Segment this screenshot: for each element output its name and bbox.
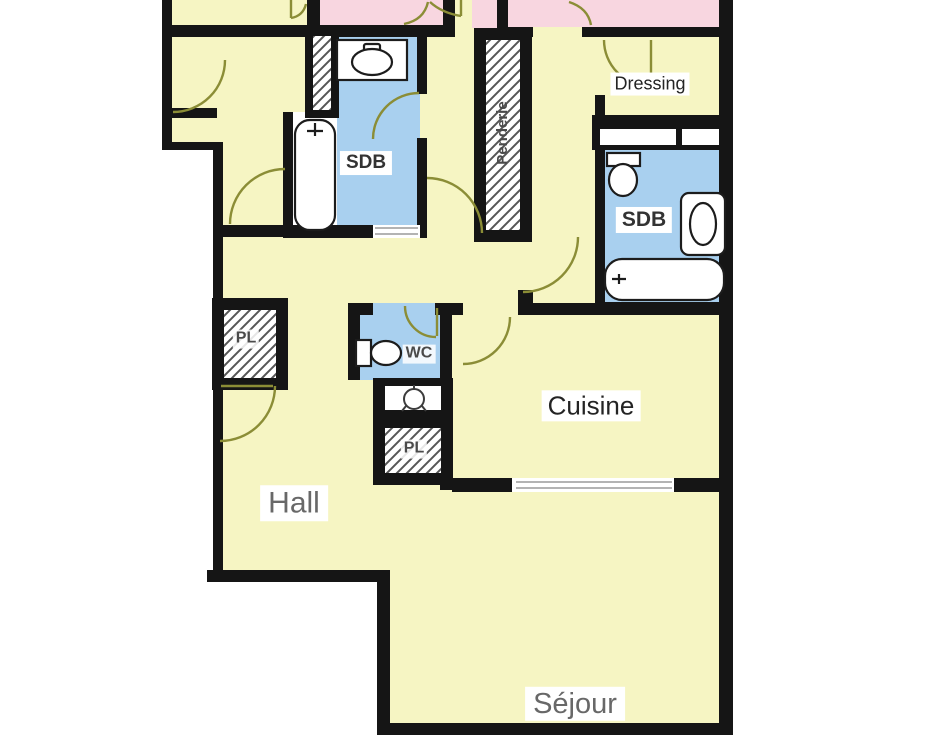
wall-segment [213,142,223,307]
wall-segment [595,302,732,315]
wall-segment [377,570,390,735]
room-label-penderie: Penderie [495,101,511,164]
room-label-sejour: Séjour [525,687,625,721]
wall-segment [497,0,508,30]
wall-segment [213,385,223,582]
room-label-pl-center: PL [401,440,427,459]
room-label-hall: Hall [260,485,328,521]
toilet-tank-icon [356,340,371,366]
wall-segment [207,570,390,582]
room-label-sdb-right: SDB [616,207,672,233]
wall-segment [674,478,722,492]
washbasin-icon [690,203,716,245]
room-label-dressing: Dressing [610,73,689,96]
wall-segment [518,303,595,315]
wall-segment [162,25,443,37]
wall-segment [443,0,455,37]
wall-segment [582,27,732,37]
wall-segment [595,150,605,315]
room-label-pl-left: PL [233,330,259,349]
wall-segment [217,225,287,237]
opening-gap [373,225,420,238]
dressing-closet-row [592,125,732,150]
closet-box [600,129,676,145]
room-label-cuisine: Cuisine [542,390,641,421]
wall-segment [719,0,733,735]
closet-hatch-icon [313,36,331,110]
wall-segment [452,478,512,492]
bedroom-fill [530,0,722,27]
toilet-bowl-icon [609,164,637,196]
wall-segment [592,115,732,126]
wall-segment [283,112,293,238]
room-label-wc: WC [403,345,436,364]
toilet-bowl-icon [371,341,401,365]
opening-gap [512,478,674,492]
bedrooms [312,0,722,28]
floorplan-svg [0,0,935,735]
wall-segment [162,0,172,150]
floorplan: Hall Séjour Cuisine Dressing SDB SDB WC … [0,0,935,735]
water-heater-box [373,378,453,418]
closet-box [682,129,719,145]
wall-segment [388,723,732,735]
shaft-hatch [305,28,339,118]
wall-segment [417,37,427,94]
bathtub-icon [295,120,335,230]
washbasin-icon [352,49,392,75]
room-label-sdb-left: SDB [340,151,392,175]
wall-segment [417,138,427,238]
